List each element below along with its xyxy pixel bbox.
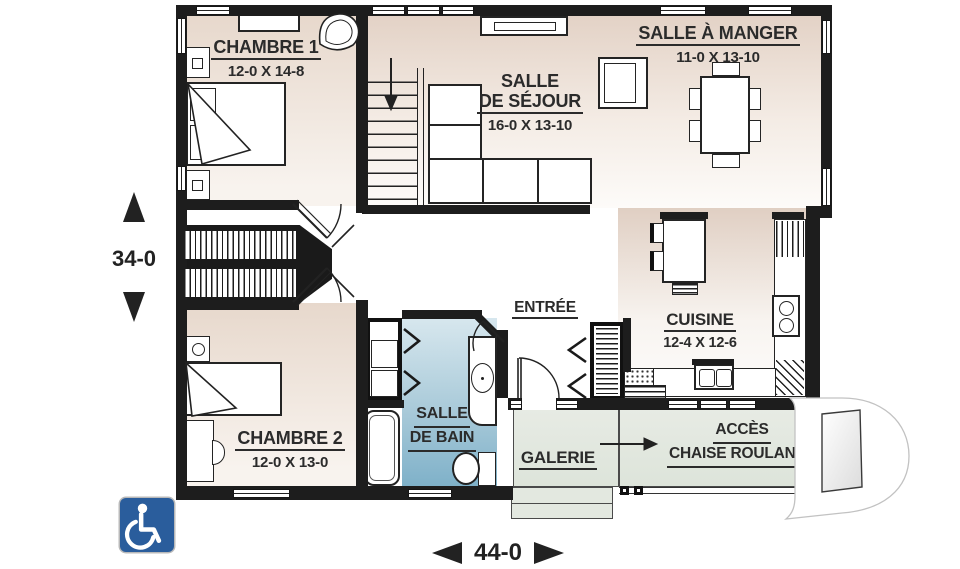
railing-post [634, 486, 643, 495]
wall-top [176, 5, 832, 16]
room-name: SALLE À MANGER [636, 23, 799, 46]
label-sejour: SALLE DE SÉJOUR 16-0 X 13-10 [452, 71, 608, 135]
dining-chair [689, 120, 701, 142]
room-name: ENTRÉE [512, 299, 578, 319]
dining-chair [749, 120, 761, 142]
dishwasher [624, 385, 666, 399]
label-entree: ENTRÉE [502, 299, 588, 319]
dining-chair [749, 88, 761, 110]
window [660, 6, 706, 15]
label-chambre1: CHAMBRE 1 12-0 X 14-8 [186, 37, 346, 81]
room-dims: 12-0 X 14-8 [228, 63, 304, 80]
wall-bedroom1-bottom [176, 200, 299, 210]
toilet-bowl [452, 452, 480, 485]
porch-step [511, 487, 613, 504]
window [822, 168, 831, 206]
closet-shelf [371, 340, 398, 368]
toilet-tank [478, 452, 496, 486]
sofa-cushion-line [537, 160, 539, 202]
window [196, 6, 230, 15]
armchair-seat [604, 63, 636, 103]
dining-chair [689, 88, 701, 110]
room-name: CUISINE [664, 310, 736, 332]
wall-right-kitchen [806, 218, 820, 410]
builder-d-watermark [782, 388, 918, 530]
window [177, 18, 186, 54]
room-name: SALLE [414, 404, 469, 428]
refrigerator [776, 221, 804, 257]
sink-drain [481, 377, 484, 380]
room-name: ACCÈS [713, 420, 770, 444]
window [822, 20, 831, 54]
closet-hanging-rod [184, 231, 296, 259]
island-base [672, 283, 698, 295]
sectional-sofa-bottom [428, 158, 592, 204]
room-dims: 12-4 X 12-6 [663, 335, 737, 351]
staircase-treads [365, 70, 417, 206]
sofa-cushion-line [482, 160, 484, 202]
dim-height: 34-0 [96, 246, 172, 272]
window [700, 400, 727, 409]
wheelchair-icon [120, 498, 174, 552]
label-manger: SALLE À MANGER 11-0 X 13-10 [628, 23, 808, 67]
label-bain: SALLE DE BAIN [397, 404, 487, 452]
dim-arrow-up [123, 192, 145, 222]
window [729, 400, 756, 409]
wall-bedroom2-top [176, 300, 299, 310]
room-name: GALERIE [519, 448, 597, 470]
window [407, 6, 440, 15]
bed-single [184, 362, 282, 416]
media-console-slot [494, 22, 556, 31]
counter-top-edge [772, 212, 804, 219]
island-counter-edge [660, 212, 708, 219]
label-galerie: GALERIE [512, 448, 604, 470]
wall-bottom-left [176, 486, 513, 500]
window [668, 400, 698, 409]
stove-burner [779, 301, 794, 316]
front-door-sill [521, 398, 557, 410]
window [442, 6, 474, 15]
room-dims: 12-0 X 13-0 [252, 454, 328, 471]
sink-bowl [716, 369, 732, 387]
window [177, 166, 186, 191]
room-name: DE SÉJOUR [477, 91, 583, 114]
dining-table [700, 76, 750, 154]
room-name: SALLE [501, 71, 559, 91]
closet-hanging-rod [184, 269, 296, 297]
wall-closet-stub [623, 318, 631, 372]
kitchen-island [662, 219, 706, 283]
room-name: CHAMBRE 2 [235, 428, 344, 451]
pillow [190, 88, 216, 121]
room-dims: 16-0 X 13-10 [488, 117, 572, 134]
floor-plan: CHAMBRE 1 12-0 X 14-8 SALLE DE SÉJOUR 16… [0, 0, 960, 569]
staircase-railing [417, 68, 424, 208]
wheelchair-glyph [120, 498, 174, 552]
window [408, 489, 452, 498]
porch-step [511, 503, 613, 519]
nightstand-lamp [192, 343, 205, 356]
stove-burner [779, 318, 794, 333]
window [748, 6, 792, 15]
room-name: CHAMBRE 1 [211, 37, 320, 60]
dim-arrow-down [123, 292, 145, 322]
wall-bedroom1-right [356, 5, 368, 213]
wall-bath-top [402, 310, 482, 319]
room-name: DE BAIN [408, 428, 476, 452]
entry-closet-rod [596, 328, 618, 394]
wall-hall-south [362, 205, 590, 214]
wall-step [806, 206, 832, 218]
sink-bowl [699, 369, 715, 387]
bathtub-inner [369, 415, 395, 481]
dim-width: 44-0 [462, 539, 534, 567]
front-door [518, 358, 559, 398]
sidelight [556, 400, 578, 409]
window [233, 489, 290, 498]
island-stool [650, 251, 664, 271]
island-stool [650, 223, 664, 243]
dim-arrow-left [432, 542, 462, 564]
pillow [190, 125, 216, 160]
closet-doors [332, 225, 354, 297]
closet-shelf [371, 370, 398, 397]
railing-post [620, 486, 629, 495]
wall-bath-right [497, 330, 508, 398]
dining-chair [712, 154, 740, 168]
window [372, 6, 405, 15]
dim-arrow-right [534, 542, 564, 564]
sink-counter-edge [692, 359, 734, 365]
label-chambre2: CHAMBRE 2 12-0 X 13-0 [210, 428, 370, 472]
label-cuisine: CUISINE 12-4 X 12-6 [640, 310, 760, 351]
dresser [238, 14, 300, 32]
room-dims: 11-0 X 13-10 [676, 49, 760, 66]
nightstand-lamp [192, 180, 203, 191]
